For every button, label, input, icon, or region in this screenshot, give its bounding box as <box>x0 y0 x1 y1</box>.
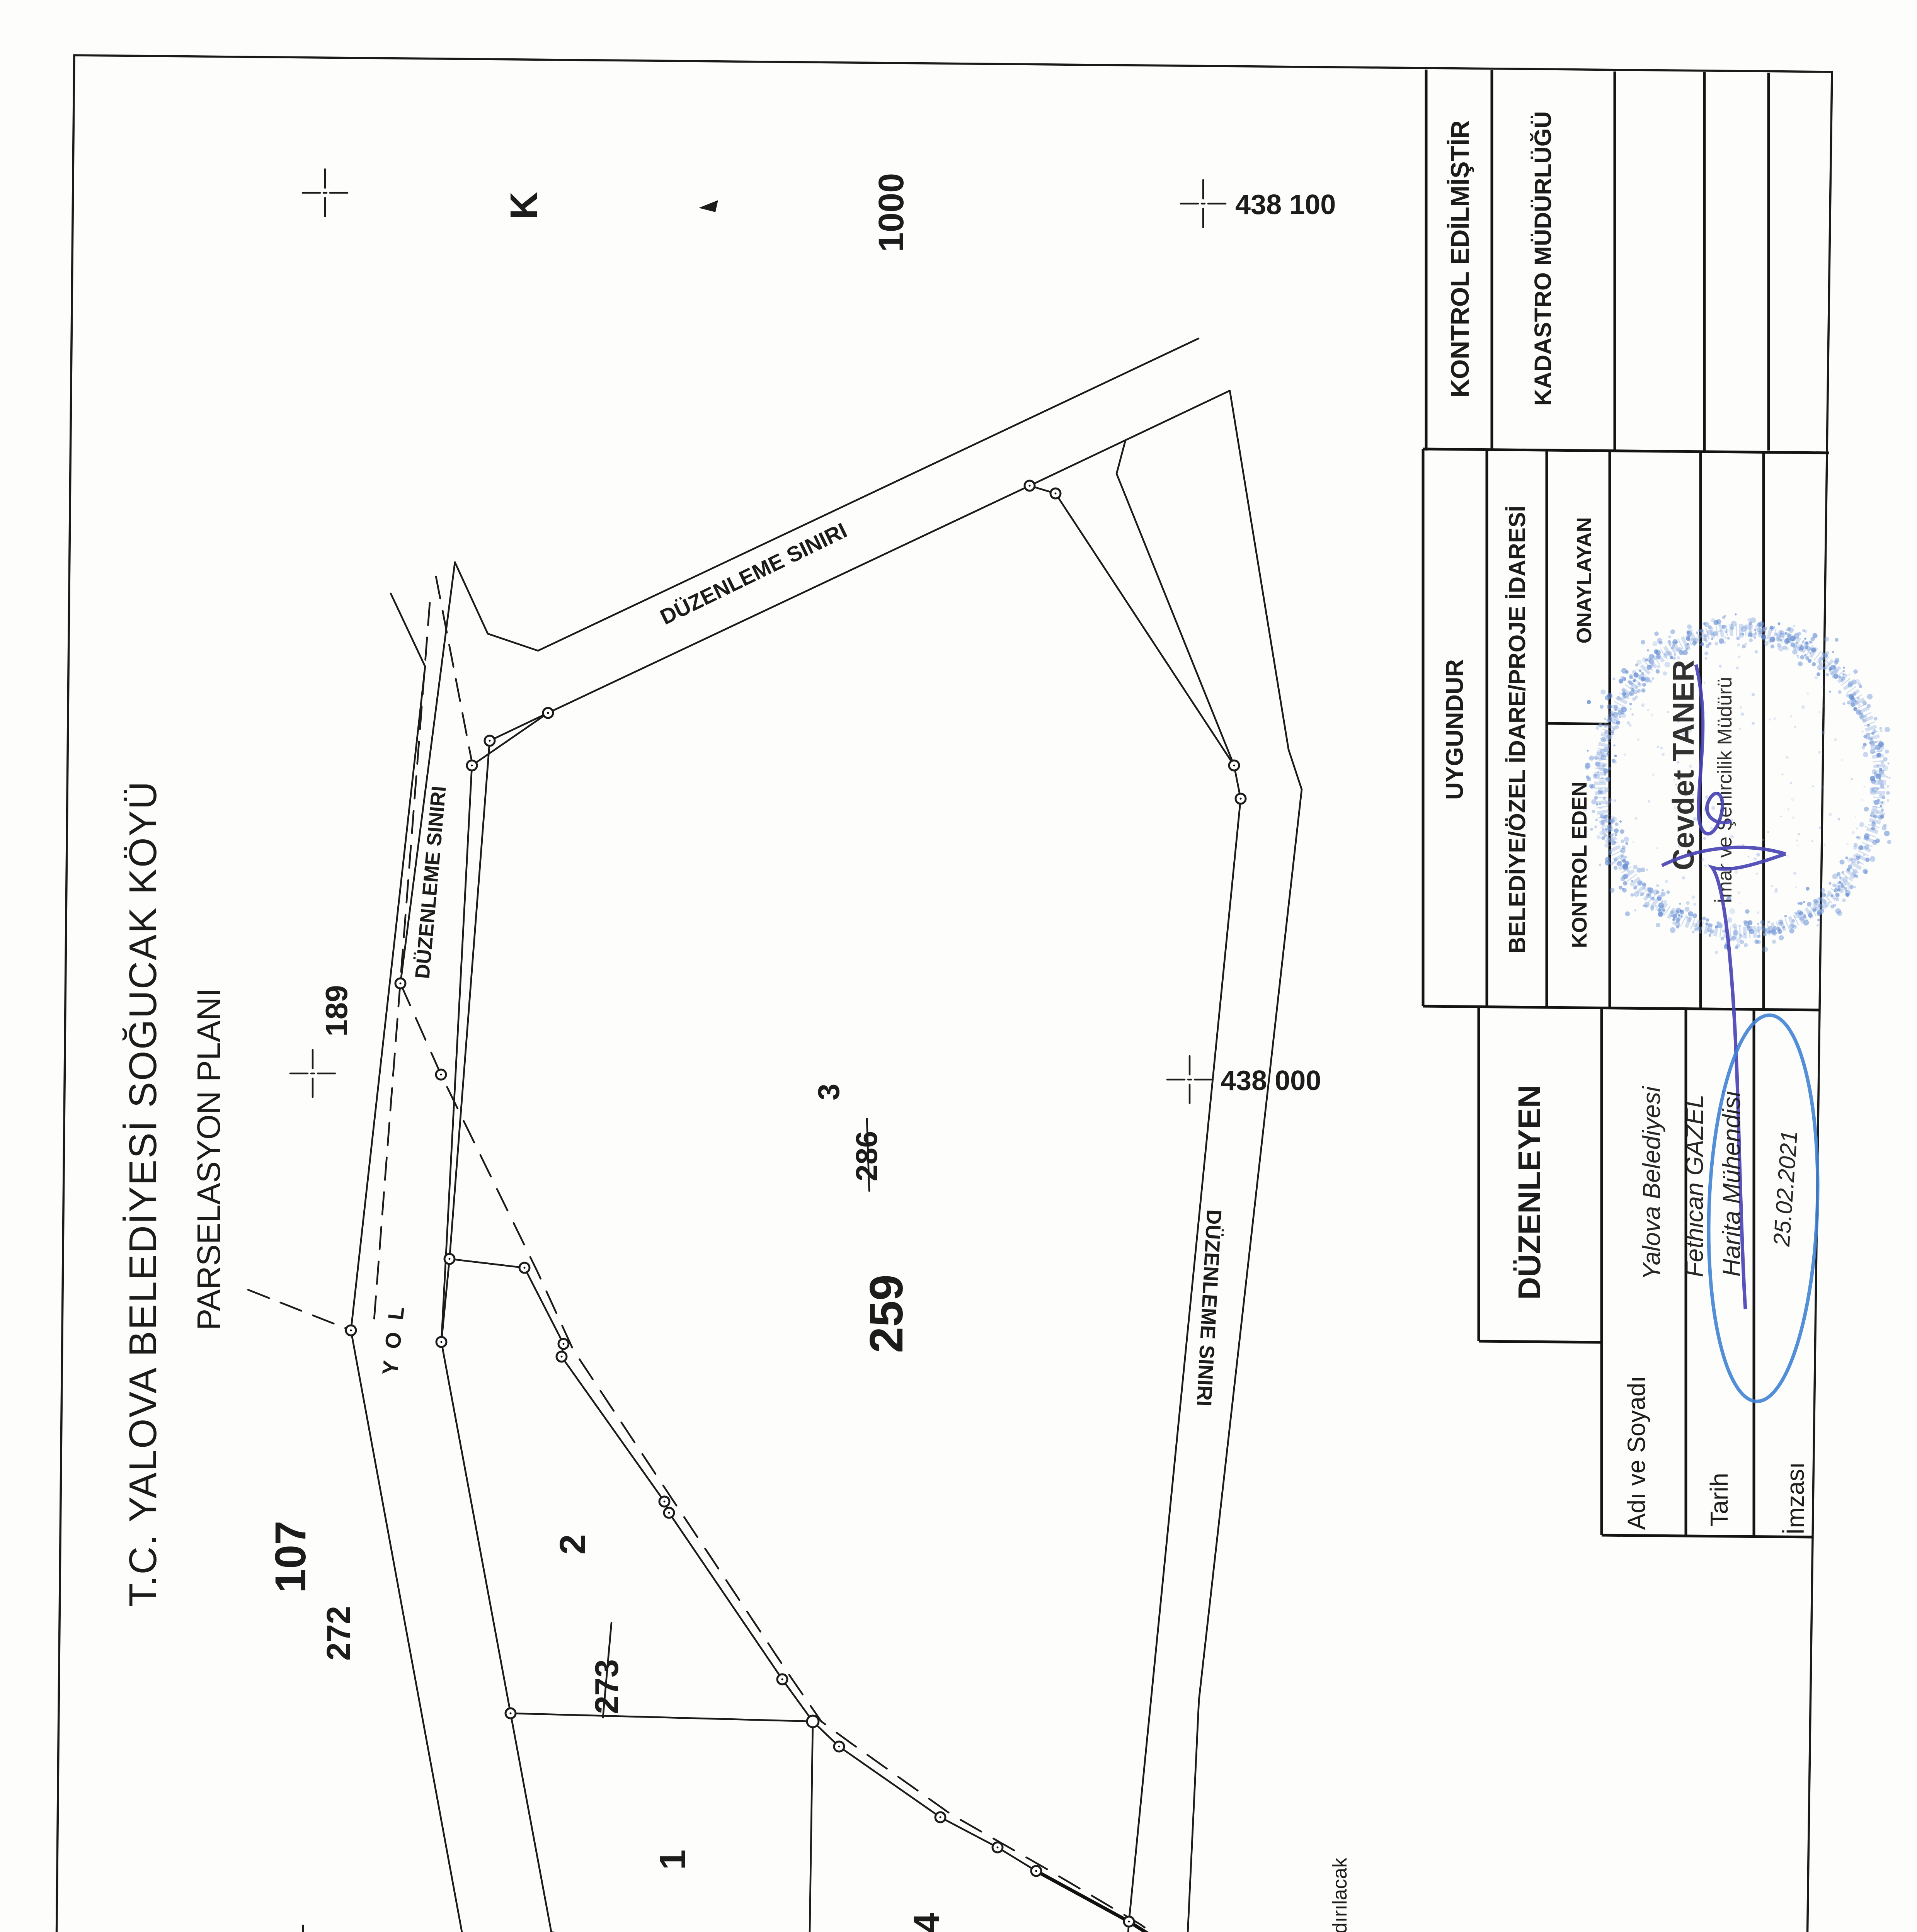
svg-text:Harita Mühendisi: Harita Mühendisi <box>1718 1090 1745 1277</box>
svg-text:286: 286 <box>850 1131 884 1181</box>
svg-text:KADASTRO MÜDÜRLÜĞÜ: KADASTRO MÜDÜRLÜĞÜ <box>1530 111 1556 406</box>
svg-text:Fethican GAZEL: Fethican GAZEL <box>1680 1094 1708 1277</box>
svg-text:KONTROL EDİLMİŞTİR: KONTROL EDİLMİŞTİR <box>1445 120 1474 397</box>
svg-text:Adı ve Soyadı: Adı ve Soyadı <box>1622 1376 1650 1530</box>
svg-text:107: 107 <box>266 1521 315 1593</box>
svg-text:2: 2 <box>552 1534 593 1555</box>
svg-text:259: 259 <box>860 1274 913 1353</box>
svg-text:DÜZENLEYEN: DÜZENLEYEN <box>1512 1085 1547 1300</box>
svg-text:Cevdet TANER: Cevdet TANER <box>1666 660 1700 871</box>
svg-text:1: 1 <box>652 1850 693 1870</box>
svg-text:BELEDİYE/ÖZEL İDARE/PROJE İDAR: BELEDİYE/ÖZEL İDARE/PROJE İDARESİ <box>1504 505 1530 953</box>
svg-text:3: 3 <box>812 1083 846 1100</box>
svg-text:PARSELASYON PLANI: PARSELASYON PLANI <box>191 988 227 1330</box>
svg-text:Yalova Belediyesi: Yalova Belediyesi <box>1638 1086 1665 1280</box>
svg-text:272: 272 <box>320 1606 357 1661</box>
svg-text:1000: 1000 <box>872 173 911 252</box>
svg-text:438 100: 438 100 <box>1235 189 1336 220</box>
svg-text:K: K <box>502 192 546 219</box>
svg-text:KONTROL EDEN: KONTROL EDEN <box>1568 781 1591 948</box>
svg-text:Tarih: Tarih <box>1705 1473 1733 1527</box>
svg-text:ONAYLAYAN: ONAYLAYAN <box>1573 517 1596 643</box>
svg-text:273: 273 <box>589 1659 625 1714</box>
svg-text:189: 189 <box>319 985 354 1036</box>
svg-text:UYGUNDUR: UYGUNDUR <box>1441 659 1468 800</box>
svg-text:Ağaçlandırılacak: Ağaçlandırılacak <box>1329 1857 1351 1932</box>
svg-text:4: 4 <box>906 1913 947 1932</box>
svg-text:T.C. YALOVA BELEDİYESİ SOĞUC: T.C. YALOVA BELEDİYESİ SOĞUCAK KÖYÜ <box>121 780 165 1607</box>
svg-text:438 000: 438 000 <box>1221 1065 1321 1096</box>
svg-text:İmzası: İmzası <box>1781 1462 1809 1535</box>
